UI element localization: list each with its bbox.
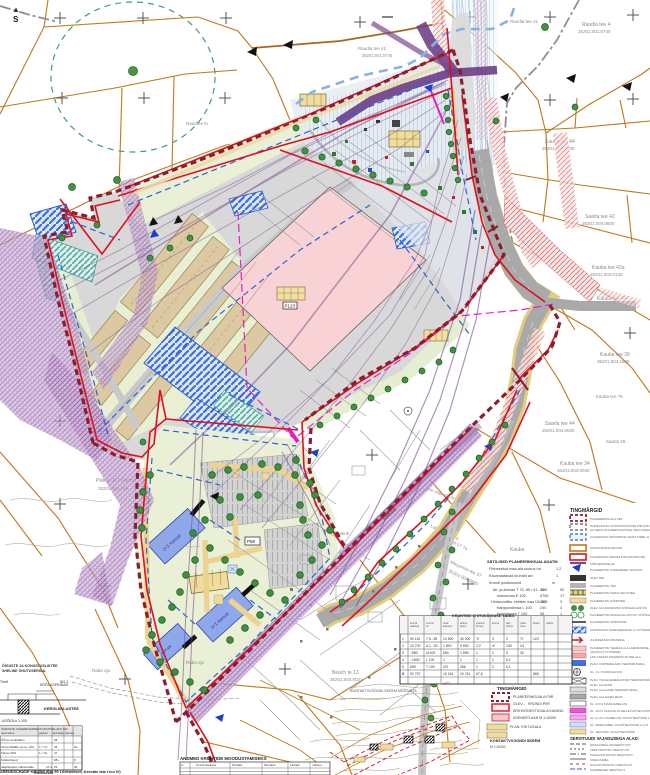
svg-text:Raudla tee 41: Raudla tee 41 bbox=[358, 46, 387, 51]
svg-text:92 797: 92 797 bbox=[410, 672, 420, 676]
svg-text:ehitus: ehitus bbox=[506, 624, 514, 628]
svg-text:SIDE KAABEL: SIDE KAABEL bbox=[590, 758, 609, 762]
svg-text:35201:004:0025: 35201:004:0025 bbox=[542, 428, 575, 433]
svg-text:KRÜNDI PIIR: KRÜNDI PIIR bbox=[528, 702, 550, 706]
svg-text:Krundi positsioonid: Krundi positsioonid bbox=[489, 581, 521, 585]
svg-text:Jätjeläpaisä, talluseralde: Jätjeläpaisä, talluseralde bbox=[1, 765, 34, 769]
svg-text:4756: 4756 bbox=[540, 594, 548, 598]
svg-text:KÕRGEPINGELIIN: KÕRGEPINGELIIN bbox=[590, 561, 615, 566]
svg-text:Ühiskondlike ehitiste maa Üh 1: Ühiskondlike ehitiste maa Üh 100 bbox=[491, 600, 547, 604]
svg-text:P88: P88 bbox=[247, 539, 256, 544]
svg-text:Raba oja: Raba oja bbox=[186, 660, 205, 665]
svg-text:2: 2 bbox=[492, 651, 494, 655]
svg-text:PLANEERINGUALA PIIR: PLANEERINGUALA PIIR bbox=[590, 517, 622, 521]
svg-text:GAASITORUSTIKU SERVITUUT: GAASITORUSTIKU SERVITUUT bbox=[590, 763, 633, 767]
svg-text:OLEV TEE: OLEV TEE bbox=[590, 576, 604, 580]
svg-text:Saarla tee 44: Saarla tee 44 bbox=[545, 421, 575, 427]
svg-text:teeü kiirus: teeü kiirus bbox=[1, 731, 15, 735]
svg-text:ALUSEKS PLANEERITAVATELE KRUNT: ALUSEKS PLANEERITAVATELE KRUNTIDELE bbox=[590, 528, 650, 532]
svg-text:Ur100: Ur100 bbox=[426, 651, 435, 655]
svg-text:145: 145 bbox=[506, 644, 512, 648]
svg-text:695: 695 bbox=[410, 665, 416, 669]
svg-text:TINGMÄRGID: TINGMÄRGID bbox=[570, 507, 603, 514]
svg-text:“C: “C bbox=[520, 637, 524, 641]
svg-text:2: 2 bbox=[492, 658, 494, 662]
svg-text:SERVITUUDI VAJADUSEGA ALAD:: SERVITUUDI VAJADUSEGA ALAD: bbox=[570, 736, 639, 741]
svg-text:30 000: 30 000 bbox=[460, 637, 470, 641]
svg-text:Pindala: Pindala bbox=[232, 763, 242, 767]
svg-text:OL. OL. PUURKAEV(15): OL. OL. PUURKAEV(15) bbox=[590, 670, 622, 674]
svg-text:Tkm⁄l: Tkm⁄l bbox=[0, 680, 9, 684]
svg-text:360: 360 bbox=[540, 600, 546, 604]
svg-text:2: 2 bbox=[402, 644, 404, 648]
svg-text:123: 123 bbox=[533, 637, 539, 641]
svg-text:“0: “0 bbox=[476, 637, 479, 641]
svg-text:MAAKAABELLIINI SERVITUUT: MAAKAABELLIINI SERVITUUT bbox=[590, 743, 631, 747]
svg-text:SÄTILISED PLANEERINGUALADATM: SÄTILISED PLANEERINGUALADATM bbox=[487, 559, 558, 564]
svg-text:PLAN. ALAJAAMA TEENINDUSMAA: PLAN. ALAJAAMA TEENINDUSMAA bbox=[590, 688, 638, 692]
svg-text:M 1:10000: M 1:10000 bbox=[490, 745, 506, 749]
svg-text:35201:004:0021: 35201:004:0021 bbox=[330, 677, 363, 682]
svg-text:L 100: L 100 bbox=[426, 658, 434, 662]
svg-text:9 500: 9 500 bbox=[460, 644, 469, 648]
svg-text:47: 47 bbox=[54, 751, 58, 755]
svg-text:korrus: korrus bbox=[492, 621, 500, 625]
svg-text:2: 2 bbox=[506, 637, 508, 641]
svg-text:Saarla 26: Saarla 26 bbox=[606, 439, 626, 444]
svg-text:PLANEERITAV TEE: PLANEERITAV TEE bbox=[590, 584, 616, 588]
svg-text:PLAN. EHITUSALA: PLAN. EHITUSALA bbox=[510, 725, 542, 729]
svg-text:nr: nr bbox=[181, 763, 184, 767]
svg-text:Beach te 13: Beach te 13 bbox=[332, 670, 359, 676]
svg-text:alune: alune bbox=[460, 624, 467, 628]
svg-text:GL: GL bbox=[74, 745, 78, 749]
svg-text:15 151: 15 151 bbox=[443, 672, 453, 676]
svg-text:34/5: 34/5 bbox=[540, 588, 547, 592]
svg-text:92: 92 bbox=[560, 588, 564, 592]
svg-text:1: 1 bbox=[476, 658, 478, 662]
svg-text:LIIKLUSESTA KAVANDATUD TEE-ALA: LIIKLUSESTA KAVANDATUD TEE-ALA bbox=[590, 655, 641, 659]
svg-text:1,2: 1,2 bbox=[556, 567, 561, 571]
svg-text:35201:004:1580: 35201:004:1580 bbox=[597, 359, 630, 364]
svg-text:SADEMEVEE SERVITUUT: SADEMEVEE SERVITUUT bbox=[590, 768, 625, 772]
svg-text:OLEV. ALAJAAM: OLEV. ALAJAAM bbox=[590, 683, 613, 687]
svg-text:1 / 7,0: 1 / 7,0 bbox=[39, 745, 48, 749]
svg-text:45: 45 bbox=[54, 745, 58, 749]
svg-text:1⁄O: 1⁄O bbox=[443, 665, 448, 669]
svg-text:Tänav 30%: Tänav 30% bbox=[1, 751, 17, 755]
svg-text:äri- ja ärimaa T 75, 85 / 41..: äri- ja ärimaa T 75, 85 / 41...30 bbox=[493, 588, 545, 592]
svg-text:1: 1 bbox=[556, 574, 558, 578]
svg-text:KAVANDATAV SADEVEEKRAAV (V. KI: KAVANDATAV SADEVEEKRAAV (V. KITSENDUSED) bbox=[590, 628, 650, 632]
svg-text:67,6: 67,6 bbox=[476, 672, 483, 676]
svg-text:3: 3 bbox=[560, 600, 562, 604]
svg-text:P123: P123 bbox=[285, 304, 296, 309]
svg-text:Kokkerlased: Kokkerlased bbox=[1, 758, 18, 762]
svg-text:2: 2 bbox=[460, 658, 462, 662]
svg-text:OL. 10 KV ÕHULIIN JA SELLE KAI: OL. 10 KV ÕHULIIN JA SELLE KAITSEVVÖÖND bbox=[590, 708, 650, 713]
svg-text:brutop: brutop bbox=[476, 624, 484, 628]
svg-text:▲: ▲ bbox=[12, 5, 20, 14]
svg-text:801.3: 801.3 bbox=[60, 680, 68, 684]
svg-text:29: 29 bbox=[54, 765, 58, 769]
svg-text:PLAN. TUULEGENERAATORI TEENIND: PLAN. TUULEGENERAATORI TEENINDUSMAA bbox=[590, 678, 650, 682]
svg-text:1⁄1: 1⁄1 bbox=[520, 644, 524, 648]
svg-text:2: 2 bbox=[492, 665, 494, 669]
svg-text:ARENDSCHADE KRUTIS (EV) 90 Lii: ARENDSCHADE KRUTIS (EV) 90 Liivitamised,… bbox=[0, 770, 121, 774]
svg-text:OL. VEETORU JA KAITSEVÖÖND: OL. VEETORU JA KAITSEVÖÖND bbox=[590, 730, 635, 734]
svg-text:4: 4 bbox=[402, 658, 404, 662]
svg-text:PLAN. KORTERELAMU TEENINDUSMAA: PLAN. KORTERELAMU TEENINDUSMAA bbox=[590, 662, 645, 666]
svg-text:märku: märku bbox=[546, 621, 554, 625]
svg-text:parkim: parkim bbox=[39, 731, 49, 735]
svg-text:1: 1 bbox=[560, 612, 562, 616]
svg-text:5: 5 bbox=[402, 665, 404, 669]
svg-text:3: 3 bbox=[402, 651, 404, 655]
svg-text:Lähtekr: Lähtekr bbox=[290, 763, 300, 767]
svg-text:kasutus: kasutus bbox=[443, 624, 453, 628]
svg-text:Krundi aadress: Krundi aadress bbox=[196, 763, 217, 767]
svg-text:VEETORUSTIKU SERVITUUT: VEETORUSTIKU SERVITUUT bbox=[590, 748, 630, 752]
svg-text:PLANEERITAV KERGLIIKLUSTEE: PLANEERITAV KERGLIIKLUSTEE bbox=[590, 591, 635, 595]
svg-text:Kauba tee 76: Kauba tee 76 bbox=[596, 394, 623, 399]
svg-text:5: 5 bbox=[506, 651, 508, 655]
svg-text:9h 115: 9h 115 bbox=[410, 637, 420, 641]
svg-text:32: 32 bbox=[520, 651, 524, 655]
svg-text:PLANEERITAV SADEMEVEE ÄRAVOOL: PLANEERITAV SADEMEVEE ÄRAVOOL bbox=[590, 568, 643, 572]
svg-text:46: 46 bbox=[74, 765, 78, 769]
svg-text:3: 3 bbox=[492, 637, 494, 641]
svg-text:1: 1 bbox=[443, 658, 445, 662]
svg-text:KERGLIIKLUSTEE: KERGLIIKLUSTEE bbox=[44, 706, 79, 711]
svg-text:1: 1 bbox=[476, 651, 478, 655]
svg-text:1 655: 1 655 bbox=[460, 651, 469, 655]
svg-text:märkus: märkus bbox=[312, 763, 322, 767]
svg-text:17: 17 bbox=[560, 594, 564, 598]
svg-text:~580: ~580 bbox=[410, 651, 418, 655]
svg-text:KAVANDATAV KRÜNDIPIIR (VAATA T: KAVANDATAV KRÜNDIPIIR (VAATA TABEL 2) bbox=[590, 535, 649, 539]
svg-text:PLANEERITAV MADALHALJASTUS / P: PLANEERITAV MADALHALJASTUS / PÕÕSAD bbox=[590, 612, 650, 617]
svg-text:98+: 98+ bbox=[54, 758, 59, 762]
svg-text:PLANEERINGUALA PIIR: PLANEERINGUALA PIIR bbox=[513, 695, 554, 699]
svg-text:95: 95 bbox=[540, 612, 544, 616]
svg-text:ANDMED KRUNTIDE MOODUSTAMISEKS: ANDMED KRUNTIDE MOODUSTAMISEKS bbox=[180, 756, 267, 761]
svg-text:266: 266 bbox=[460, 665, 466, 669]
svg-text:665: 665 bbox=[533, 672, 539, 676]
svg-text:KONTAKTVVOONDI SKEEM: KONTAKTVVOONDI SKEEM bbox=[490, 739, 540, 743]
svg-text:aadress: aadress bbox=[410, 624, 420, 628]
svg-text:Kauba tee 39: Kauba tee 39 bbox=[600, 352, 630, 358]
svg-text:~1600: ~1600 bbox=[410, 658, 420, 662]
svg-text:OL. 0,4 KV KAABELLIIN JA KAITS: OL. 0,4 KV KAABELLIIN JA KAITSEVÖÖND 1+1… bbox=[590, 716, 650, 720]
svg-text:OLEV...: OLEV... bbox=[513, 702, 525, 706]
svg-text:10 761: 10 761 bbox=[460, 672, 470, 676]
svg-text:35201:004:0130: 35201:004:0130 bbox=[590, 272, 623, 277]
svg-text:ASÕ⁄OLu 1:100: ASÕ⁄OLu 1:100 bbox=[2, 718, 27, 723]
svg-text:240: 240 bbox=[540, 606, 546, 610]
svg-text:Raudtee tn: Raudtee tn bbox=[186, 121, 209, 126]
svg-text:35201:001:0740: 35201:001:0740 bbox=[578, 29, 611, 34]
svg-text:35201:004:0040: 35201:004:0040 bbox=[557, 468, 590, 473]
svg-text:KONTAKTVVÔÔNDI SKEEM MÕÕDISTA: KONTAKTVVÔÔNDI SKEEM MÕÕDISTA bbox=[350, 688, 417, 693]
svg-text:650: 650 bbox=[443, 651, 449, 655]
svg-text:1 / 7ta: 1 / 7ta bbox=[39, 751, 48, 755]
svg-text:(VAATA KA TP PIIRIDE): (VAATA KA TP PIIRIDE) bbox=[590, 650, 621, 654]
svg-text:35201:004:0600: 35201:004:0600 bbox=[582, 221, 615, 226]
svg-text:10 700: 10 700 bbox=[410, 644, 420, 648]
svg-text:OLEV JA KAVANDATAV KÕRGHALJAST: OLEV JA KAVANDATAV KÕRGHALJASTUS bbox=[590, 605, 647, 610]
svg-text:1: 1 bbox=[476, 665, 478, 669]
svg-text:Moodust: Moodust bbox=[264, 763, 276, 767]
svg-text:OL. SIDEKAABEL JA KAITSEVÖÖND: OL. SIDEKAABEL JA KAITSEVÖÖND 1+1 M bbox=[590, 723, 649, 727]
svg-text:S: S bbox=[13, 15, 19, 24]
svg-text:SHELINE ÔHUTUSERIGA.: SHELINE ÔHUTUSERIGA. bbox=[2, 668, 46, 673]
svg-text:mine: mine bbox=[520, 624, 526, 628]
svg-text:OL. 10 KV MAAKAABELLIIN: OL. 10 KV MAAKAABELLIIN bbox=[590, 702, 627, 706]
svg-text:kitsen: kitsen bbox=[533, 621, 540, 625]
svg-text:13 500: 13 500 bbox=[443, 637, 453, 641]
svg-text:1 800: 1 800 bbox=[443, 644, 452, 648]
svg-text:35201:001:0740: 35201:001:0740 bbox=[362, 53, 393, 58]
svg-text:transpordimaa L 100: transpordimaa L 100 bbox=[497, 606, 532, 610]
svg-text:m²: m² bbox=[426, 625, 429, 628]
svg-text:Saarla tee 42: Saarla tee 42 bbox=[585, 214, 615, 220]
svg-text:KANALISATSIOONI SERVITUUT: KANALISATSIOONI SERVITUUT bbox=[590, 753, 633, 757]
svg-text:KAVANDATAV KRÜNDI PIIR (KRUNDI: KAVANDATAV KRÜNDI PIIR (KRUNDI NR) bbox=[590, 555, 645, 559]
svg-text:6,1: 6,1 bbox=[506, 658, 511, 662]
svg-text:2,2: 2,2 bbox=[476, 644, 481, 648]
svg-text:KATASTRIÜKSUSE PIIR: KATASTRIÜKSUSE PIIR bbox=[590, 546, 622, 550]
svg-text:ÔÕ ja toodriäärne: ÔÕ ja toodriäärne bbox=[1, 737, 25, 742]
svg-text:PLANEERITAV KÕNNITEE: PLANEERITAV KÕNNITEE bbox=[590, 598, 625, 603]
svg-text:PLAN. ALAJAAMA MAHT: PLAN. ALAJAAMA MAHT bbox=[590, 695, 623, 699]
svg-text:Kauba tee 42a: Kauba tee 42a bbox=[592, 265, 625, 271]
svg-text:Planeeritud maa-ala suurus ha: Planeeritud maa-ala suurus ha bbox=[489, 567, 542, 571]
svg-text:Raba oja: Raba oja bbox=[92, 668, 111, 673]
svg-text:JUURDEPÄÄS KRUNDILE: JUURDEPÄÄS KRUNDILE bbox=[590, 638, 625, 642]
svg-text:ASENDIPLAAN M 1:10000: ASENDIPLAAN M 1:10000 bbox=[513, 716, 556, 720]
svg-text:Kauba tee 34: Kauba tee 34 bbox=[560, 461, 590, 467]
svg-text:1: 1 bbox=[402, 637, 404, 641]
svg-text:ÄRIHOONESTUSALA KAVAND: ÄRIHOONESTUSALA KAVAND bbox=[513, 709, 564, 713]
svg-text:Kauba: Kauba bbox=[510, 547, 525, 553]
svg-text:A 1...30: A 1...30 bbox=[426, 644, 438, 648]
svg-text:KRUNTIDE EHITUSÕIGUSE TABEL: KRUNTIDE EHITUSÕIGUSE TABEL bbox=[452, 613, 515, 618]
svg-text:38: 38 bbox=[54, 738, 58, 742]
svg-text:parven: parven bbox=[65, 731, 75, 735]
svg-text:PLANEERITAV MÜRATORE: PLANEERITAV MÜRATORE bbox=[590, 620, 627, 624]
svg-text:elamumaa E 100: elamumaa E 100 bbox=[497, 594, 526, 598]
svg-text:ÕIGUSTE JA KOHUSTUSLIKTEE: ÕIGUSTE JA KOHUSTUSLIKTEE bbox=[2, 663, 58, 668]
svg-text:7,5...95: 7,5...95 bbox=[426, 637, 437, 641]
svg-text:1⁄1.2: 1⁄1.2 bbox=[46, 765, 53, 769]
svg-text:kohtade: kohtade bbox=[53, 731, 64, 735]
svg-text:4: 4 bbox=[560, 606, 562, 610]
svg-text:T 100: T 100 bbox=[426, 665, 435, 669]
svg-text:Teit puhäälike ja va. 10%: Teit puhäälike ja va. 10% bbox=[1, 745, 35, 749]
svg-text:Raudla tee 4: Raudla tee 4 bbox=[582, 22, 611, 28]
svg-text:TINGMÄRGID: TINGMÄRGID bbox=[497, 685, 527, 691]
svg-text:6,1: 6,1 bbox=[506, 665, 511, 669]
svg-text:Raudla tee 41: Raudla tee 41 bbox=[510, 19, 539, 24]
svg-text:Kavandatavad krundid arv: Kavandatavad krundid arv bbox=[489, 574, 533, 578]
